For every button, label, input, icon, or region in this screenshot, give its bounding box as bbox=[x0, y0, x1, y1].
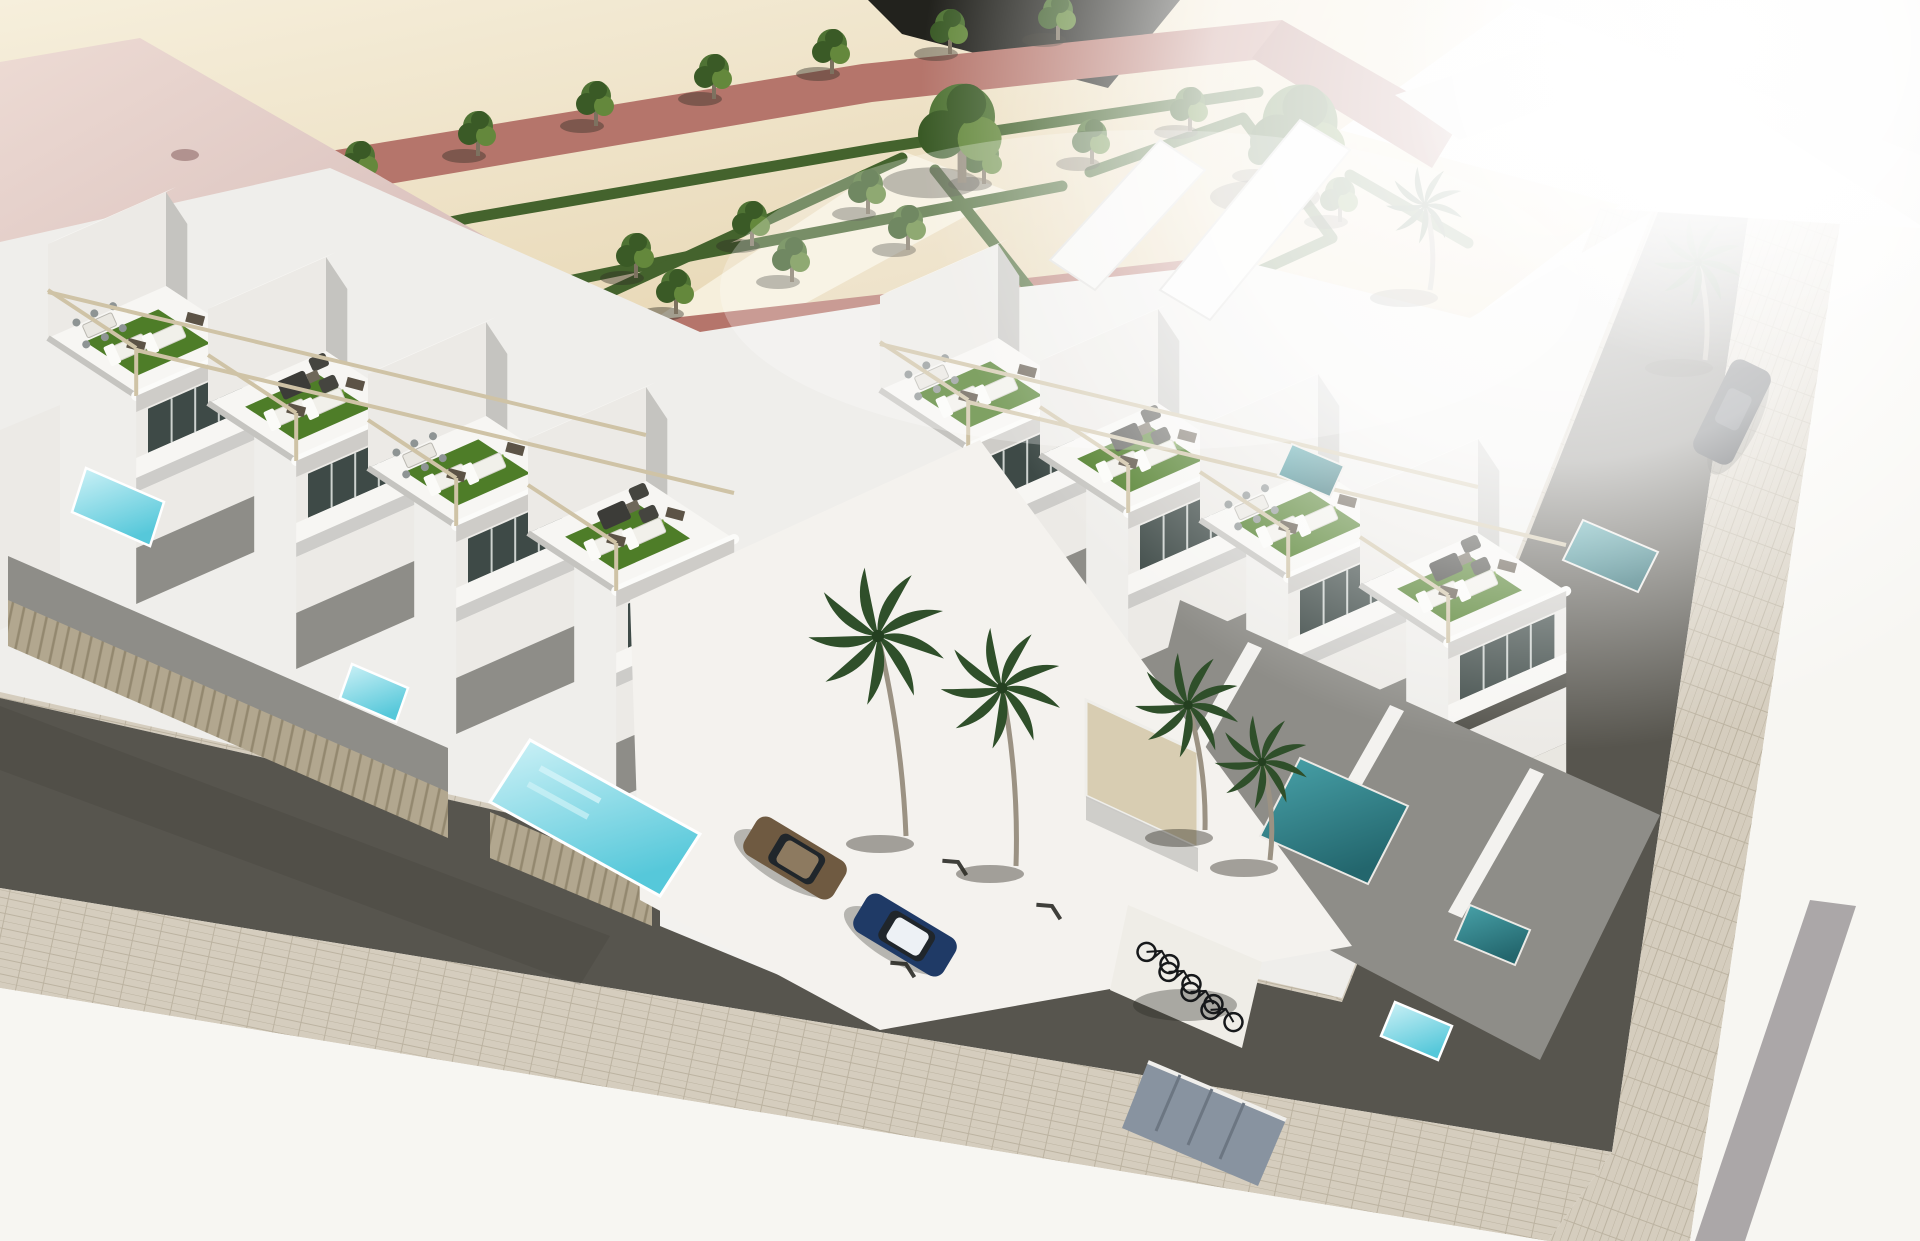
render-stage bbox=[0, 0, 1920, 1241]
render-canvas bbox=[0, 0, 1920, 1241]
